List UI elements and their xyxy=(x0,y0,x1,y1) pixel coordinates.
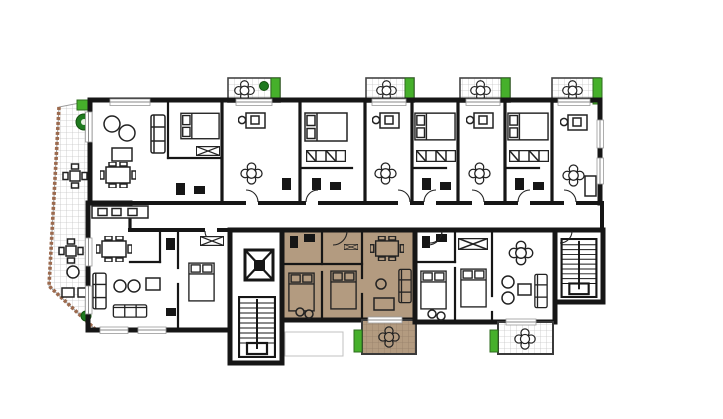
apartment-studio-4 xyxy=(560,115,596,196)
footprint-outline xyxy=(285,332,343,356)
balcony-bottom-highlighted xyxy=(354,317,416,354)
apartment-bedroom-2 xyxy=(415,113,456,190)
balcony-planter-icon xyxy=(354,330,362,352)
apartment-studio-3 xyxy=(466,113,493,184)
apartment-bottom-left xyxy=(88,203,230,330)
terrace-box-1 xyxy=(62,288,74,297)
apartment-bedroom-3 xyxy=(508,113,549,190)
top-row-apartments xyxy=(90,100,600,203)
balcony-planter-icon xyxy=(490,330,498,352)
balcony-plant-icon xyxy=(260,82,269,91)
apartment-studio-2 xyxy=(372,113,399,184)
stairs-icon xyxy=(239,297,275,357)
apartment-top-left xyxy=(100,113,220,195)
floor-plan-drawing xyxy=(0,0,723,419)
stairs-icon xyxy=(562,239,597,297)
apartment-studio-1 xyxy=(238,113,291,190)
apartment-highlighted xyxy=(282,230,416,354)
apartment-bottom-right xyxy=(415,230,555,354)
elevator-icon xyxy=(245,250,273,280)
apartment-bedroom-1 xyxy=(305,113,347,190)
balcony-bottom-right xyxy=(490,319,553,354)
terrace-round-table xyxy=(67,266,79,278)
floor-plan-page xyxy=(0,0,723,419)
stairwell-right xyxy=(555,230,603,302)
